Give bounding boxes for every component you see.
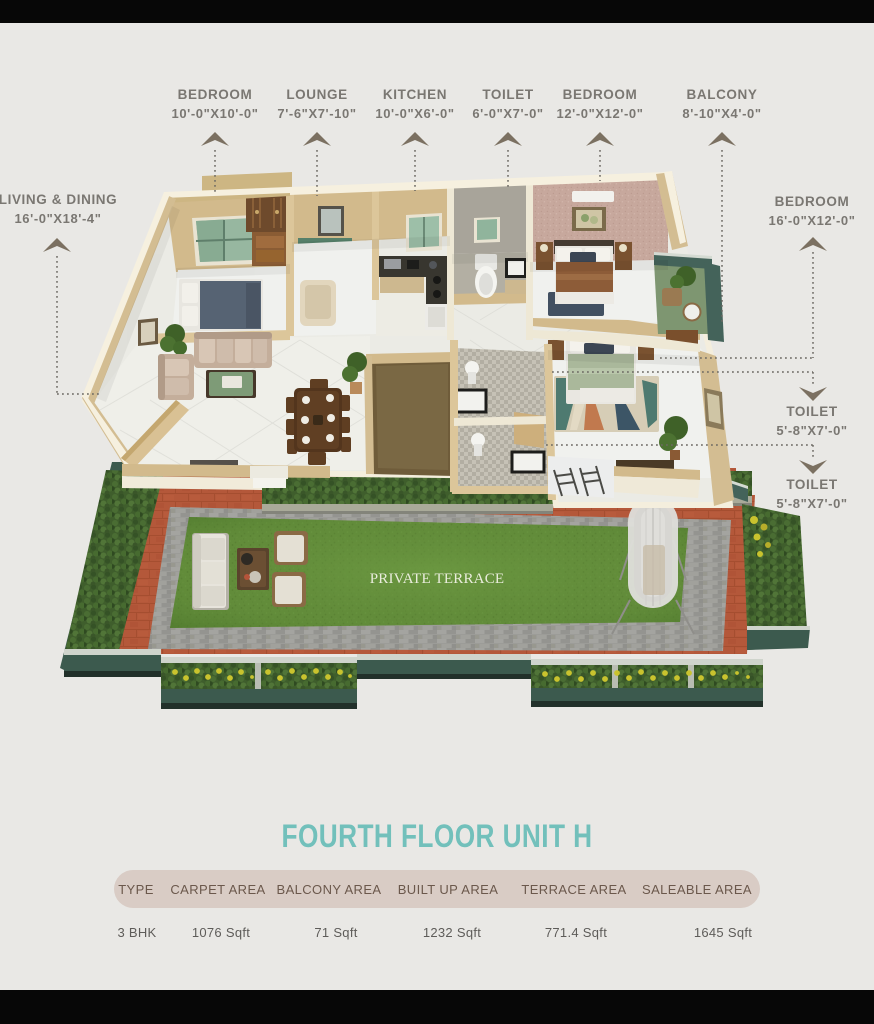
svg-text:PRIVATE TERRACE: PRIVATE TERRACE [370, 571, 505, 587]
